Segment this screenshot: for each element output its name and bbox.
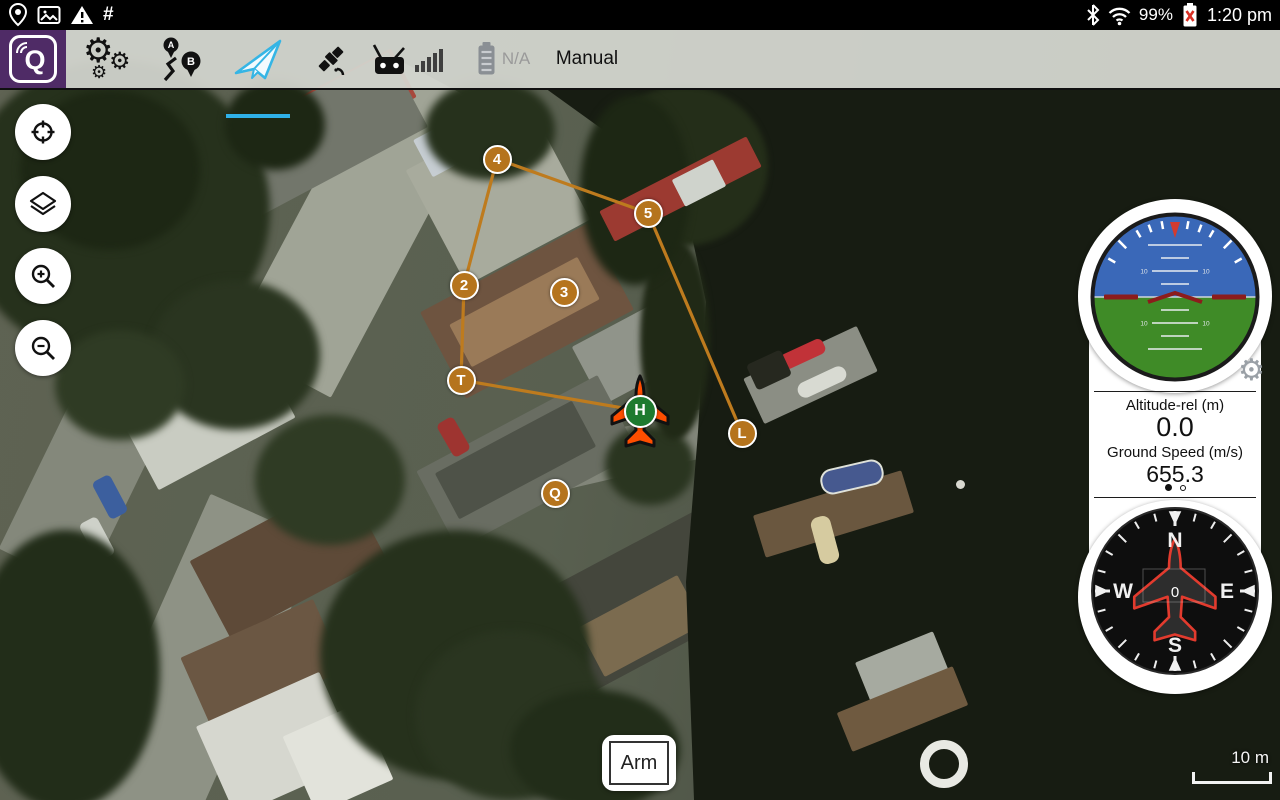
- ground-speed-label: Ground Speed (m/s): [1089, 444, 1261, 461]
- svg-text:10: 10: [1140, 321, 1148, 328]
- svg-text:W: W: [1113, 580, 1133, 603]
- rc-rssi-button[interactable]: [362, 30, 454, 88]
- waypoint-marker-3[interactable]: 3: [550, 278, 579, 307]
- compass-indicator[interactable]: N E S W 0: [1090, 506, 1260, 676]
- arm-button[interactable]: Arm: [602, 735, 676, 791]
- pager-dot-active: [1165, 484, 1172, 491]
- flight-mode-label: Manual: [556, 48, 618, 70]
- map-feature: [255, 415, 405, 545]
- panel-divider: [1094, 391, 1256, 392]
- waypoint-marker-4[interactable]: 4: [483, 145, 512, 174]
- paper-plane-icon: [233, 37, 283, 81]
- plan-button[interactable]: A B: [150, 30, 212, 88]
- fly-view-active-indicator: [226, 114, 290, 118]
- map-scale-label: 10 m: [1231, 748, 1269, 768]
- fly-view-button[interactable]: [224, 30, 292, 88]
- plan-route-icon: A B: [157, 35, 205, 83]
- attitude-indicator[interactable]: 10 10 10 10: [1090, 212, 1260, 382]
- map-feature: [956, 480, 965, 489]
- battery-icon: [476, 42, 497, 76]
- flight-mode-button[interactable]: Manual: [548, 30, 626, 88]
- waypoint-marker-L[interactable]: L: [728, 419, 757, 448]
- altitude-value: 0.0: [1089, 412, 1261, 443]
- map-feature: [0, 530, 160, 800]
- arm-button-label: Arm: [609, 741, 669, 785]
- location-icon: [8, 2, 28, 28]
- status-bar-right: 99% 1:20 pm: [1086, 3, 1280, 27]
- svg-text:B: B: [187, 56, 195, 68]
- gps-status-button[interactable]: [304, 30, 358, 88]
- pager-dot-inactive: [1180, 485, 1186, 491]
- waypoint-marker-T[interactable]: T: [447, 366, 476, 395]
- wifi-icon: [1107, 5, 1132, 26]
- bluetooth-icon: [1086, 4, 1100, 26]
- svg-text:10: 10: [1140, 269, 1148, 276]
- crosshair-icon: [28, 117, 58, 147]
- status-bar-left: #: [0, 2, 114, 28]
- roll-tick: [1187, 221, 1188, 229]
- battery-value: N/A: [502, 49, 530, 69]
- layers-icon: [27, 189, 59, 219]
- qgroundcontrol-app: 4523TLQH: [0, 0, 1280, 800]
- svg-text:S: S: [1168, 634, 1182, 657]
- settings-button[interactable]: ⚙⚙⚙: [80, 30, 138, 88]
- svg-text:N: N: [1167, 529, 1182, 552]
- svg-text:E: E: [1220, 580, 1234, 603]
- center-map-button[interactable]: [15, 104, 71, 160]
- map-view[interactable]: 4523TLQH: [0, 0, 1280, 800]
- android-status-bar: # 99% 1:20 pm: [0, 0, 1280, 30]
- rc-transmitter-icon: [371, 42, 409, 76]
- hash-indicator: #: [103, 4, 114, 26]
- satellite-icon: [313, 41, 349, 77]
- waypoint-marker-Q[interactable]: Q: [541, 479, 570, 508]
- battery-alert-icon: [1180, 3, 1200, 27]
- values-pager-dots[interactable]: [1089, 484, 1261, 491]
- zoom-in-button[interactable]: [15, 248, 71, 304]
- svg-text:A: A: [168, 40, 175, 50]
- zoom-out-button[interactable]: [15, 320, 71, 376]
- app-toolbar: Q ⚙⚙⚙ A B: [0, 30, 1280, 90]
- home-marker[interactable]: H: [624, 395, 657, 428]
- waypoint-marker-5[interactable]: 5: [634, 199, 663, 228]
- zoom-out-icon: [28, 333, 58, 363]
- waypoint-marker-2[interactable]: 2: [450, 271, 479, 300]
- battery-status-button[interactable]: N/A: [462, 30, 544, 88]
- warning-icon: [70, 4, 94, 26]
- instrument-settings-gear-icon[interactable]: ⚙: [1238, 356, 1265, 386]
- zoom-in-icon: [28, 261, 58, 291]
- signal-waves-icon: [14, 40, 32, 58]
- qgc-logo: Q: [9, 35, 57, 83]
- map-feature: [55, 330, 185, 440]
- heading-value: 0: [1171, 584, 1179, 601]
- svg-text:10: 10: [1202, 269, 1210, 276]
- signal-bars-icon: [415, 46, 445, 72]
- map-feature: [225, 80, 325, 170]
- svg-text:10: 10: [1202, 321, 1210, 328]
- map-layers-button[interactable]: [15, 176, 71, 232]
- panel-divider: [1094, 497, 1256, 498]
- roll-tick: [1162, 221, 1163, 229]
- clock: 1:20 pm: [1207, 5, 1272, 26]
- map-feature: [920, 740, 968, 788]
- gallery-icon: [37, 4, 61, 26]
- map-scale-bar: [1192, 772, 1272, 784]
- gears-icon: ⚙⚙⚙: [83, 34, 135, 84]
- qgc-logo-button[interactable]: Q: [0, 30, 66, 88]
- battery-percent: 99%: [1139, 5, 1173, 25]
